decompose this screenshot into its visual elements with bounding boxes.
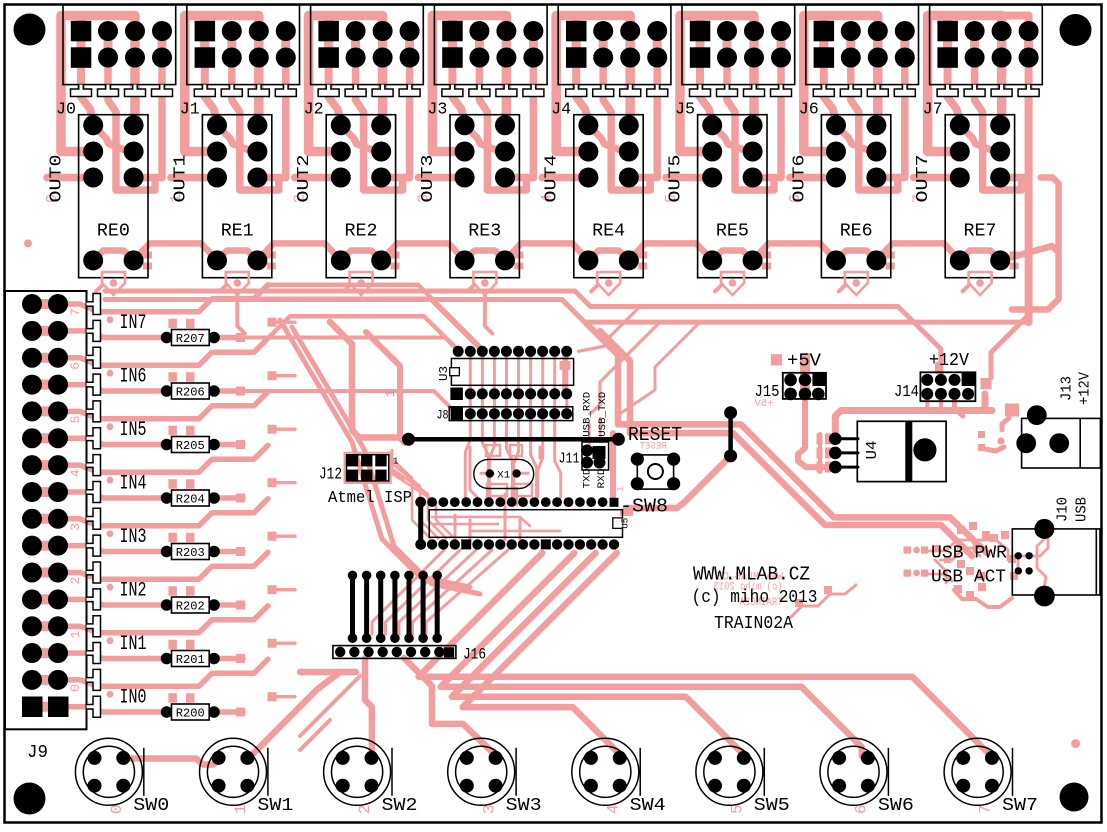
svg-text:(c) miho 2013: (c) miho 2013 xyxy=(692,588,818,608)
svg-text:OUT4: OUT4 xyxy=(543,155,562,203)
svg-text:5: 5 xyxy=(68,416,83,424)
svg-text:USB PWR: USB PWR xyxy=(931,543,1007,564)
svg-text:IN0: IN0 xyxy=(120,686,147,709)
svg-text:J8: J8 xyxy=(437,409,449,423)
svg-text:IN2: IN2 xyxy=(120,579,147,602)
svg-text:TXD: TXD xyxy=(582,469,594,489)
svg-text:R207: R207 xyxy=(176,333,205,346)
svg-text:IN4: IN4 xyxy=(120,472,147,495)
svg-text:3: 3 xyxy=(68,523,83,531)
svg-text:R202: R202 xyxy=(176,600,205,613)
svg-text:2: 2 xyxy=(68,577,83,585)
svg-text:USB ACT: USB ACT xyxy=(931,567,1006,588)
svg-text:J1: J1 xyxy=(180,100,200,119)
svg-text:RE7: RE7 xyxy=(964,221,997,242)
svg-text:R206: R206 xyxy=(176,386,205,399)
svg-text:J15: J15 xyxy=(755,383,780,402)
svg-text:J5: J5 xyxy=(675,100,695,119)
svg-text:RESET: RESET xyxy=(628,424,682,446)
svg-text:OUT6: OUT6 xyxy=(790,155,809,203)
svg-text:J4: J4 xyxy=(551,100,571,119)
svg-text:SW3: SW3 xyxy=(506,795,542,816)
svg-text:IN6: IN6 xyxy=(120,365,147,388)
svg-text:1: 1 xyxy=(383,389,398,397)
svg-text:WWW.MLAB.CZ: WWW.MLAB.CZ xyxy=(693,564,810,586)
svg-text:OUT5: OUT5 xyxy=(667,155,686,203)
svg-text:R201: R201 xyxy=(176,654,205,667)
svg-text:J12: J12 xyxy=(319,465,342,484)
svg-text:6: 6 xyxy=(68,362,83,370)
svg-text:X1: X1 xyxy=(497,469,510,481)
svg-text:OUT3: OUT3 xyxy=(419,155,438,203)
svg-text:U4: U4 xyxy=(864,441,881,460)
svg-text:R203: R203 xyxy=(176,547,205,560)
svg-text:RE0: RE0 xyxy=(97,221,130,242)
svg-text:7: 7 xyxy=(68,308,83,316)
svg-text:J9: J9 xyxy=(27,743,48,763)
svg-text:U3: U3 xyxy=(437,366,451,381)
svg-text:J3: J3 xyxy=(427,100,447,119)
svg-text:4: 4 xyxy=(68,469,83,477)
svg-text:RE2: RE2 xyxy=(345,221,378,242)
svg-text:USB_RXD: USB_RXD xyxy=(582,392,594,437)
svg-text:J16: J16 xyxy=(463,645,486,663)
svg-text:RE3: RE3 xyxy=(468,221,501,242)
svg-text:J11: J11 xyxy=(559,451,580,467)
svg-text:J0: J0 xyxy=(56,100,76,119)
svg-text:OUT2: OUT2 xyxy=(295,155,314,203)
svg-text:J10: J10 xyxy=(1055,497,1072,522)
svg-text:RE6: RE6 xyxy=(840,221,873,242)
svg-text:IN1: IN1 xyxy=(120,633,147,656)
svg-text:OUT0: OUT0 xyxy=(48,155,67,203)
svg-text:0: 0 xyxy=(68,684,83,692)
svg-text:J7: J7 xyxy=(923,100,943,119)
svg-text:TRAIN02A: TRAIN02A xyxy=(714,614,793,634)
svg-text:IN3: IN3 xyxy=(120,526,147,549)
svg-text:+5V: +5V xyxy=(787,351,821,372)
svg-text:J13: J13 xyxy=(1058,376,1075,401)
svg-text:1: 1 xyxy=(68,630,83,638)
svg-text:J2: J2 xyxy=(304,100,324,119)
svg-text:SW1: SW1 xyxy=(257,795,293,816)
svg-text:OUT7: OUT7 xyxy=(914,155,933,203)
svg-text:R205: R205 xyxy=(176,440,205,453)
svg-text:USB: USB xyxy=(1074,497,1091,522)
svg-text:SW4: SW4 xyxy=(630,795,666,816)
svg-text:+12V: +12V xyxy=(929,350,969,371)
svg-text:SW0: SW0 xyxy=(133,795,169,816)
svg-text:SW6: SW6 xyxy=(878,795,914,816)
svg-text:Atmel ISP: Atmel ISP xyxy=(328,489,412,508)
svg-text:RE1: RE1 xyxy=(221,221,254,242)
svg-text:R200: R200 xyxy=(176,707,205,720)
svg-text:1: 1 xyxy=(393,457,398,467)
svg-text:J6: J6 xyxy=(799,100,819,119)
svg-text:SW7: SW7 xyxy=(1002,795,1038,816)
svg-text:J14: J14 xyxy=(894,383,919,402)
svg-text:R204: R204 xyxy=(176,493,205,506)
svg-text:IN5: IN5 xyxy=(120,419,147,442)
svg-text:RE4: RE4 xyxy=(592,221,625,242)
svg-text:IN7: IN7 xyxy=(120,312,147,335)
svg-text:USB_TXD: USB_TXD xyxy=(597,392,609,437)
svg-text:1: 1 xyxy=(616,486,626,491)
svg-text:U5: U5 xyxy=(621,518,631,529)
svg-text:SW5: SW5 xyxy=(754,795,790,816)
svg-text:RXD: RXD xyxy=(596,469,608,489)
svg-text:SW2: SW2 xyxy=(382,795,418,816)
svg-text:RE5: RE5 xyxy=(716,221,749,242)
svg-text:-SW8: -SW8 xyxy=(620,496,668,518)
svg-text:OUT1: OUT1 xyxy=(171,155,190,203)
svg-text:+12V: +12V xyxy=(1076,372,1093,405)
